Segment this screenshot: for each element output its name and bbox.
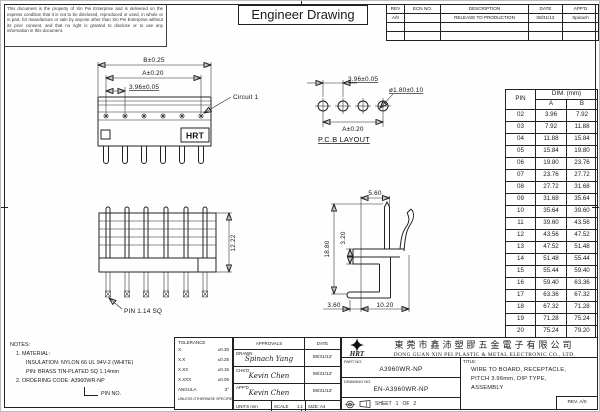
approvals-block: APPROVALS DATE DRAWN Spinach Yang 08/31/… bbox=[233, 337, 341, 410]
dim-label-12-22: 12.22 bbox=[230, 234, 237, 251]
tolerance-row: ANGULA3° bbox=[178, 385, 229, 395]
note-pin: PIN: BRASS TIN-PLATED SQ 1.14mm bbox=[10, 368, 170, 377]
approvals-date-heading: DATE bbox=[305, 338, 340, 349]
front-view: HRT B±0.25 A±0.20 3.96±0.05 Circuit 1 bbox=[98, 57, 258, 164]
circuit-marks bbox=[103, 113, 204, 119]
approvals-heading: APPROVALS bbox=[234, 338, 305, 349]
tolerance-block: TOLERANCE X.±0.30 X.X±0.25 X.XX±0.15 X.X… bbox=[174, 337, 233, 410]
terminal-view: 5.60 18.80 3.20 3.60 10.20 bbox=[323, 190, 414, 312]
title-cell: TITLE: WIRE TO BOARD, RECEPTACLE, PITCH … bbox=[461, 358, 597, 410]
profile-pin-tails bbox=[106, 272, 208, 297]
company-name-en: DONG GUAN XIN PEI PLASTIC & METAL ELECTR… bbox=[372, 352, 597, 358]
title-line-2: PITCH 3.96mm, DIP TYPE, bbox=[471, 375, 597, 384]
title-line-1: WIRE TO BOARD, RECEPTACLE, bbox=[471, 366, 597, 375]
approval-row: APP'D Kevin Chen 08/31/12' bbox=[234, 384, 340, 401]
dim-label-10-20: 10.20 bbox=[377, 302, 394, 309]
units-cell: UNITS mm bbox=[234, 401, 272, 412]
part-no-cell: PART NO. A3960WR-NP bbox=[342, 358, 460, 378]
sheet-cell: SHEET 1 OF 2 bbox=[342, 398, 460, 410]
tolerance-row: X.X±0.25 bbox=[178, 355, 229, 365]
front-view-logo: HRT bbox=[186, 131, 205, 141]
note-material: 1. MATERIAL: bbox=[10, 350, 170, 359]
pcb-layout-label: P.C.B LAYOUT bbox=[318, 135, 370, 144]
polarity-square bbox=[101, 130, 110, 139]
tolerance-row: X.XX±0.15 bbox=[178, 365, 229, 375]
dim-label-3-20: 3.20 bbox=[340, 231, 347, 244]
dim-label-18-80: 18.80 bbox=[324, 240, 331, 257]
dim-label-pcb-pitch: 3.96±0.05 bbox=[348, 76, 378, 83]
title-line-3: ASSEMBLY bbox=[471, 384, 597, 393]
company-name-cn: 東莞市鑫沛塑膠五金電子有限公司 bbox=[372, 338, 597, 351]
note-insulation: INSULATION: NYLON 66 UL 94V-2 (WHITE) bbox=[10, 359, 170, 368]
rev-badge: REV. A/0 bbox=[556, 396, 597, 410]
pin-no-leader bbox=[84, 387, 98, 396]
tolerance-footnote: UNLESS OTHERWISE SPECIFIED bbox=[178, 397, 229, 401]
projection-symbol-cone-icon bbox=[359, 400, 371, 408]
note-ordering-code: 2. ORDERING CODE: A3960WR-NP bbox=[10, 377, 170, 386]
dim-label-b: B±0.25 bbox=[143, 57, 165, 64]
pin-no-label: PIN NO. bbox=[101, 390, 121, 399]
dim-label-pcb-a: A±0.20 bbox=[342, 126, 364, 133]
pin-sq-label: PIN 1.14 SQ bbox=[124, 308, 162, 315]
scale-cell: SCALE1:1 bbox=[272, 401, 306, 412]
dim-label-hole-diameter: ø1.80±0.10 bbox=[389, 87, 424, 94]
drawing-no-value: EN-A3960WR-NP bbox=[342, 386, 460, 393]
dim-label-a: A±0.20 bbox=[142, 70, 164, 77]
projection-symbol-circle-icon bbox=[345, 400, 355, 409]
approval-row: DRAWN Spinach Yang 08/31/12' bbox=[234, 350, 340, 367]
profile-view: 12.22 PIN 1.14 SQ bbox=[99, 207, 237, 315]
pcb-holes bbox=[315, 98, 391, 114]
logo-text: HRT bbox=[342, 350, 372, 358]
drawing-no-cell: DRAWING NO. EN-A3960WR-NP bbox=[342, 378, 460, 398]
notes-heading: NOTES: bbox=[10, 341, 170, 350]
terminal-outline bbox=[347, 202, 414, 298]
part-no-value: A3960WR-NP bbox=[342, 366, 460, 373]
engineering-drawing-sheet: This document is the property of Xin Pei… bbox=[0, 0, 600, 412]
size-cell: SIZE: A4 bbox=[306, 401, 340, 412]
approval-row: CHK'D Kevin Chen 08/31/12' bbox=[234, 367, 340, 384]
circuit1-label: Circuit 1 bbox=[233, 94, 258, 101]
front-pins bbox=[104, 146, 204, 164]
tolerance-row: X.XXX±0.05 bbox=[178, 375, 229, 385]
title-block: HRT 東莞市鑫沛塑膠五金電子有限公司 DONG GUAN XIN PEI PL… bbox=[341, 337, 598, 410]
notes-block: NOTES: 1. MATERIAL: INSULATION: NYLON 66… bbox=[10, 341, 170, 411]
profile-pins bbox=[106, 207, 207, 258]
dim-label-pitch: 3.96±0.05 bbox=[129, 84, 159, 91]
dim-label-5-60: 5.60 bbox=[368, 190, 381, 197]
pcb-layout-view: 3.96±0.05 ø1.80±0.10 A±0.20 P.C.B LAYOUT bbox=[307, 76, 424, 144]
company-logo: HRT bbox=[342, 338, 372, 358]
tolerance-row: X.±0.30 bbox=[178, 345, 229, 355]
dim-label-3-60: 3.60 bbox=[327, 302, 340, 309]
